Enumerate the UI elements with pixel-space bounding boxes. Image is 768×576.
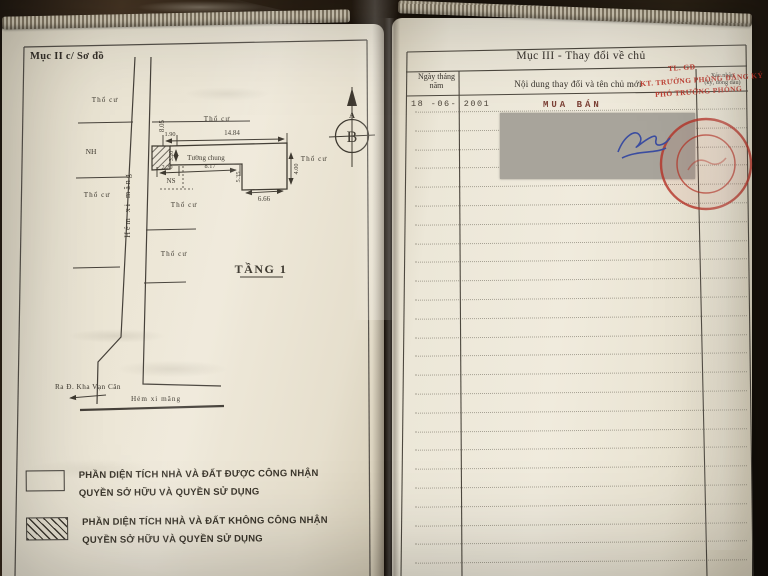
dim-rear-width: 6.66: [258, 195, 271, 203]
photographed-land-certificate: Thổ cư Thổ cư Thổ cư Thổ cư Thổ cư Thổ c…: [0, 0, 768, 576]
land-label-6: Thổ cư: [161, 249, 188, 258]
entry-date-stamp: 18 -06- 2001: [411, 99, 463, 109]
land-label-4: Thổ cư: [84, 190, 111, 199]
land-label-5: Thổ cư: [171, 200, 198, 209]
dim-rear-left: 2.20: [161, 164, 172, 171]
shared-wall-label: Tường chung: [187, 154, 225, 162]
dim-side-top: 8.05: [159, 119, 166, 131]
ns-label: NS: [167, 177, 176, 185]
legend-item-unrecognized: PHẦN DIỆN TÍCH NHÀ VÀ ĐẤT KHÔNG CÔNG NHẬ…: [26, 512, 366, 550]
legend-unrecognized-line1: PHẦN DIỆN TÍCH NHÀ VÀ ĐẤT KHÔNG CÔNG NHẬ…: [82, 512, 328, 532]
north-arrow-icon: [347, 88, 357, 106]
dim-front-main: 14.84: [224, 129, 240, 137]
diagram-labels: Thổ cư Thổ cư Thổ cư Thổ cư Thổ cư Thổ c…: [55, 95, 357, 403]
column-header-date: Ngày tháng năm: [414, 72, 459, 90]
land-label-1: Thổ cư: [92, 95, 119, 104]
legend-item-recognized: PHẦN DIỆN TÍCH NHÀ VÀ ĐẤT ĐƯỢC CÔNG NHẬN…: [26, 465, 366, 503]
dim-right-depth: 4.00: [293, 163, 300, 174]
dimension-lines: [157, 133, 291, 193]
dim-front-left: 1.90: [164, 131, 175, 138]
alley-label-vertical: Hẻm xi măng: [123, 172, 132, 238]
land-label-2: Thổ cư: [204, 114, 231, 123]
red-stamp-line1: TL. GĐ: [668, 62, 696, 73]
right-section-title: Mục III - Thay đổi về chủ: [415, 50, 747, 62]
map-legend: PHẦN DIỆN TÍCH NHÀ VÀ ĐẤT ĐƯỢC CÔNG NHẬN…: [26, 465, 367, 562]
floor-label: TẦNG 1: [235, 261, 288, 276]
dim-step-depth: 5.35: [235, 171, 242, 182]
legend-recognized-line1: PHẦN DIỆN TÍCH NHÀ VÀ ĐẤT ĐƯỢC CÔNG NHẬN: [79, 465, 319, 485]
dim-shared-wall: 8.17: [204, 163, 215, 170]
alley-lines: [70, 57, 250, 410]
column-header-date-line2: năm: [414, 81, 459, 90]
house-label: NH: [86, 147, 97, 156]
legend-swatch-hatched: [26, 517, 68, 540]
alley-label-bottom: Hẻm xi măng: [131, 395, 181, 403]
red-seal-icon: [661, 119, 751, 209]
legend-recognized-line2: QUYỀN SỞ HỮU VÀ QUYỀN SỬ DỤNG: [79, 482, 319, 502]
column-header-date-line1: Ngày tháng: [414, 72, 459, 81]
legend-text-unrecognized: PHẦN DIỆN TÍCH NHÀ VÀ ĐẤT KHÔNG CÔNG NHẬ…: [82, 512, 328, 549]
legend-unrecognized-line2: QUYỀN SỞ HỮU VÀ QUYỀN SỬ DỤNG: [82, 530, 328, 550]
land-label-3: Thổ cư: [301, 154, 328, 163]
legend-text-recognized: PHẦN DIỆN TÍCH NHÀ VÀ ĐẤT ĐƯỢC CÔNG NHẬN…: [79, 465, 319, 502]
entry-content-stamp: MUA BÁN: [543, 100, 602, 110]
left-section-title: Mục II c/ Sơ đồ: [30, 51, 104, 62]
legend-swatch-plain: [26, 470, 65, 491]
street-label: Ra Đ. Kha Vạn Cân: [55, 383, 121, 391]
dim-hatch-depth: 3.20: [169, 151, 175, 162]
